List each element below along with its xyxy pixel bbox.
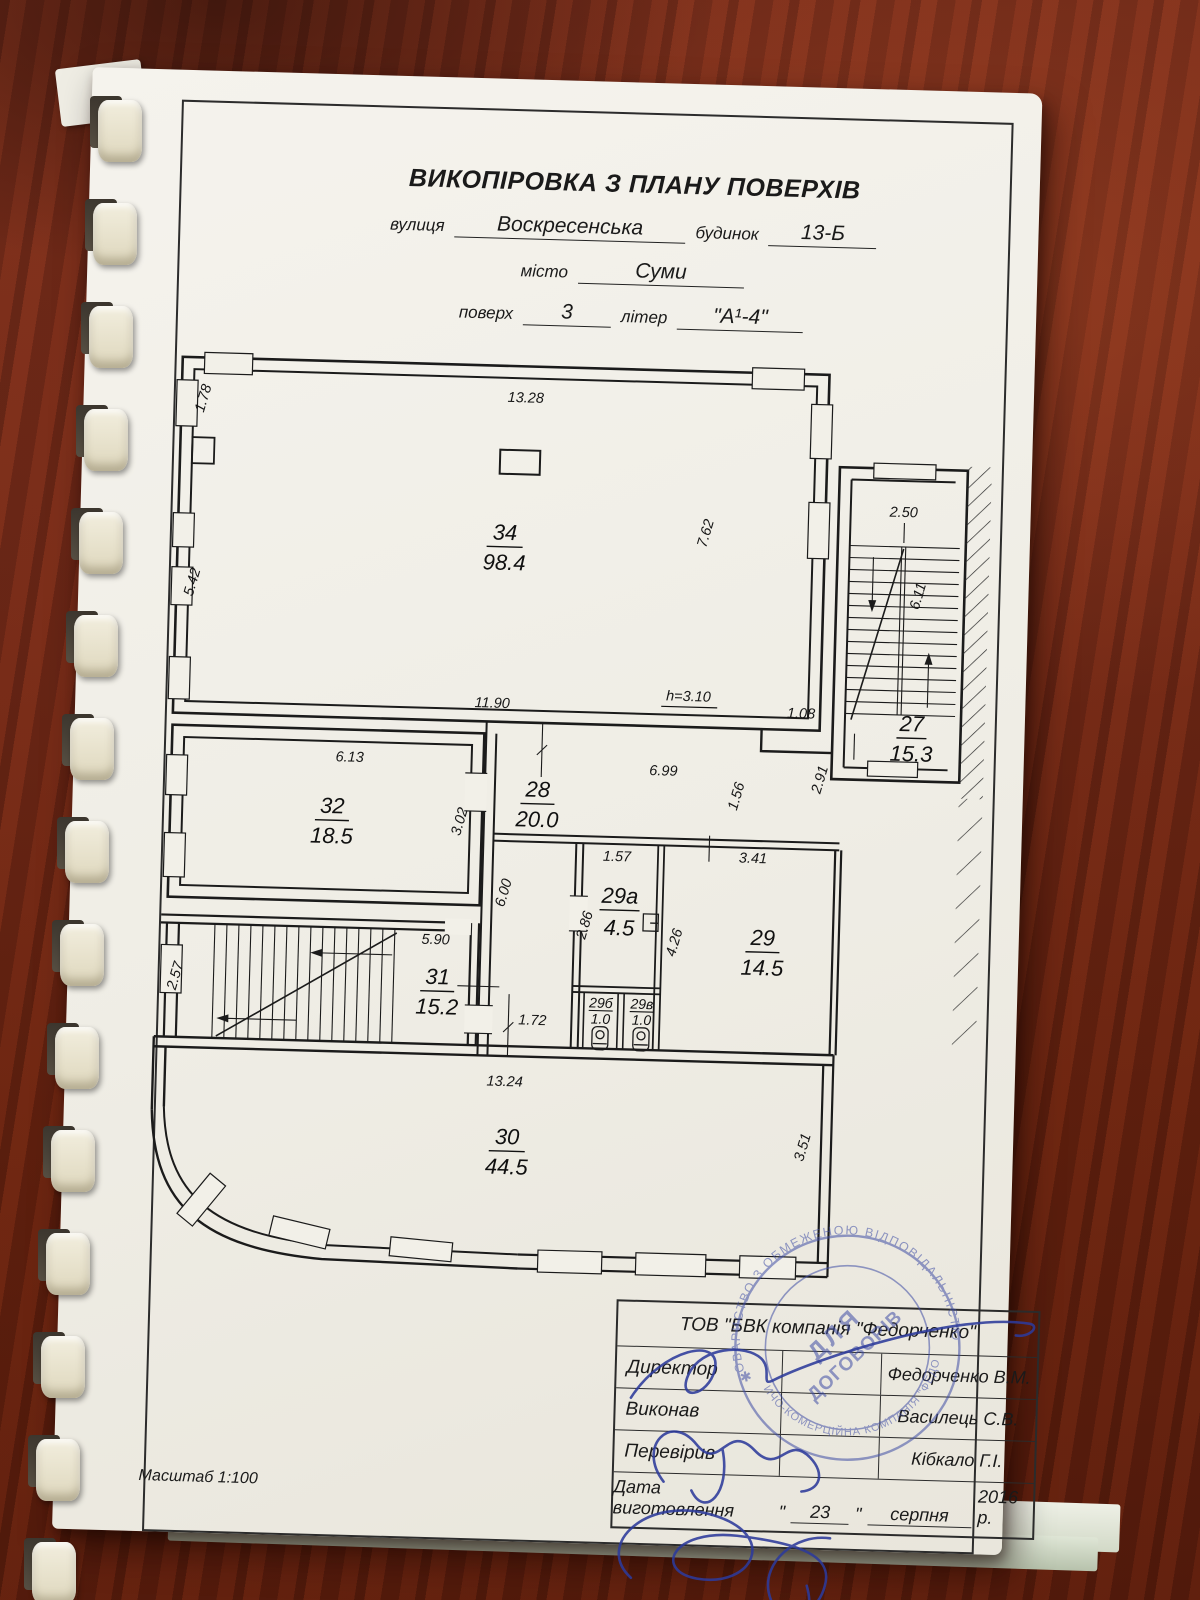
street-label: вулиця [390,215,445,238]
floor-value: 3 [523,299,612,327]
building-value: 13-Б [769,220,878,249]
binding-comb [51,1130,95,1192]
binding-comb [84,409,128,471]
dim-5-90: 5.90 [421,932,450,949]
room-29v-number: 29в [629,996,653,1013]
checker-signature [617,1509,831,1600]
binding-comb [46,1233,90,1295]
room-28-number: 28 [524,777,551,803]
dim-3-41: 3.41 [739,851,768,868]
room-29b-area: 1.0 [591,1010,611,1027]
dim-4-26: 4.26 [663,926,687,959]
dim-2-91: 2.91 [808,764,832,797]
toilet-icons [592,1026,650,1051]
document-header: ВИКОПІРОВКА З ПЛАНУ ПОВЕРХІВ вулиця Воск… [236,159,1030,339]
binding-comb [74,615,118,677]
binding-comb [55,1027,99,1089]
binding-comb [79,512,123,574]
building-label: будинок [695,223,759,246]
document-page: ВИКОПІРОВКА З ПЛАНУ ПОВЕРХІВ вулиця Воск… [52,67,1042,1555]
walls [148,357,971,1281]
dim-6-11: 6.11 [907,581,930,612]
letter-label: літер [621,307,668,329]
director-signature [631,1311,1034,1408]
room-29b-number: 29б [588,994,614,1011]
binding-comb [98,100,142,162]
room-29a-number: 29а [600,883,638,909]
pilaster [192,437,215,464]
dim-6-00: 6.00 [492,877,515,909]
dim-7-62: 7.62 [695,518,718,550]
scale-note: Масштаб 1:100 [138,1467,258,1488]
room-34-number: 34 [492,520,517,546]
dim-13-24: 13.24 [486,1074,523,1091]
street-row: вулиця Воскресенська будинок 13-Б [238,205,1028,253]
room-27-area: 15.3 [889,741,933,767]
room-27-number: 27 [898,711,925,737]
binding-comb [89,306,133,368]
binding-comb [36,1439,80,1501]
executor-signature [652,1431,820,1506]
photo-scene: ВИКОПІРОВКА З ПЛАНУ ПОВЕРХІВ вулиця Воск… [0,0,1200,1600]
room-31-number: 31 [425,964,450,990]
dim-2-50: 2.50 [888,505,918,522]
height-note: h=3.10 [666,688,711,705]
room-30-area: 44.5 [485,1154,529,1180]
room-32-area: 18.5 [310,823,354,849]
floor-plan: 13.28 1.78 5.42 7.62 34 98.4 h=3.10 11.9… [139,334,995,1307]
letter-value: "А¹-4" [677,304,804,334]
vent-shaft [500,450,541,475]
room-29-area: 14.5 [740,955,784,981]
binding-comb [60,924,104,986]
room-30-number: 30 [495,1124,521,1150]
dim-6-13: 6.13 [335,749,364,766]
room-29-number: 29 [749,925,775,951]
room-34-area: 98.4 [482,549,526,575]
stairs-upper [845,545,960,722]
city-label: місто [520,261,568,283]
binding-comb [70,718,114,780]
binding-comb [32,1542,76,1600]
dim-11-90: 11.90 [474,695,510,712]
dim-1-08: 1.08 [787,706,816,723]
room-28-area: 20.0 [514,806,559,832]
street-value: Воскресенська [454,211,686,243]
room-29v-area: 1.0 [632,1012,652,1029]
room-29a-area: 4.5 [603,915,635,941]
dim-6-99: 6.99 [649,763,678,780]
dim-3-51: 3.51 [791,1132,814,1164]
dim-3-02: 3.02 [448,806,471,838]
floor-label: поверх [459,302,514,325]
binding-comb [65,821,109,883]
binding-comb [93,203,137,265]
dim-1-56: 1.56 [725,780,749,813]
dim-1-72: 1.72 [518,1012,547,1029]
ink-signatures [569,1231,1060,1600]
dim-1-57: 1.57 [603,849,633,866]
room-32-number: 32 [320,793,345,819]
city-value: Суми [578,258,745,289]
room-31-area: 15.2 [415,994,459,1020]
stairs-lower [212,924,397,1043]
binding-comb [41,1336,85,1398]
dim-13-28: 13.28 [507,390,544,407]
city-row: місто Суми [237,248,1027,296]
